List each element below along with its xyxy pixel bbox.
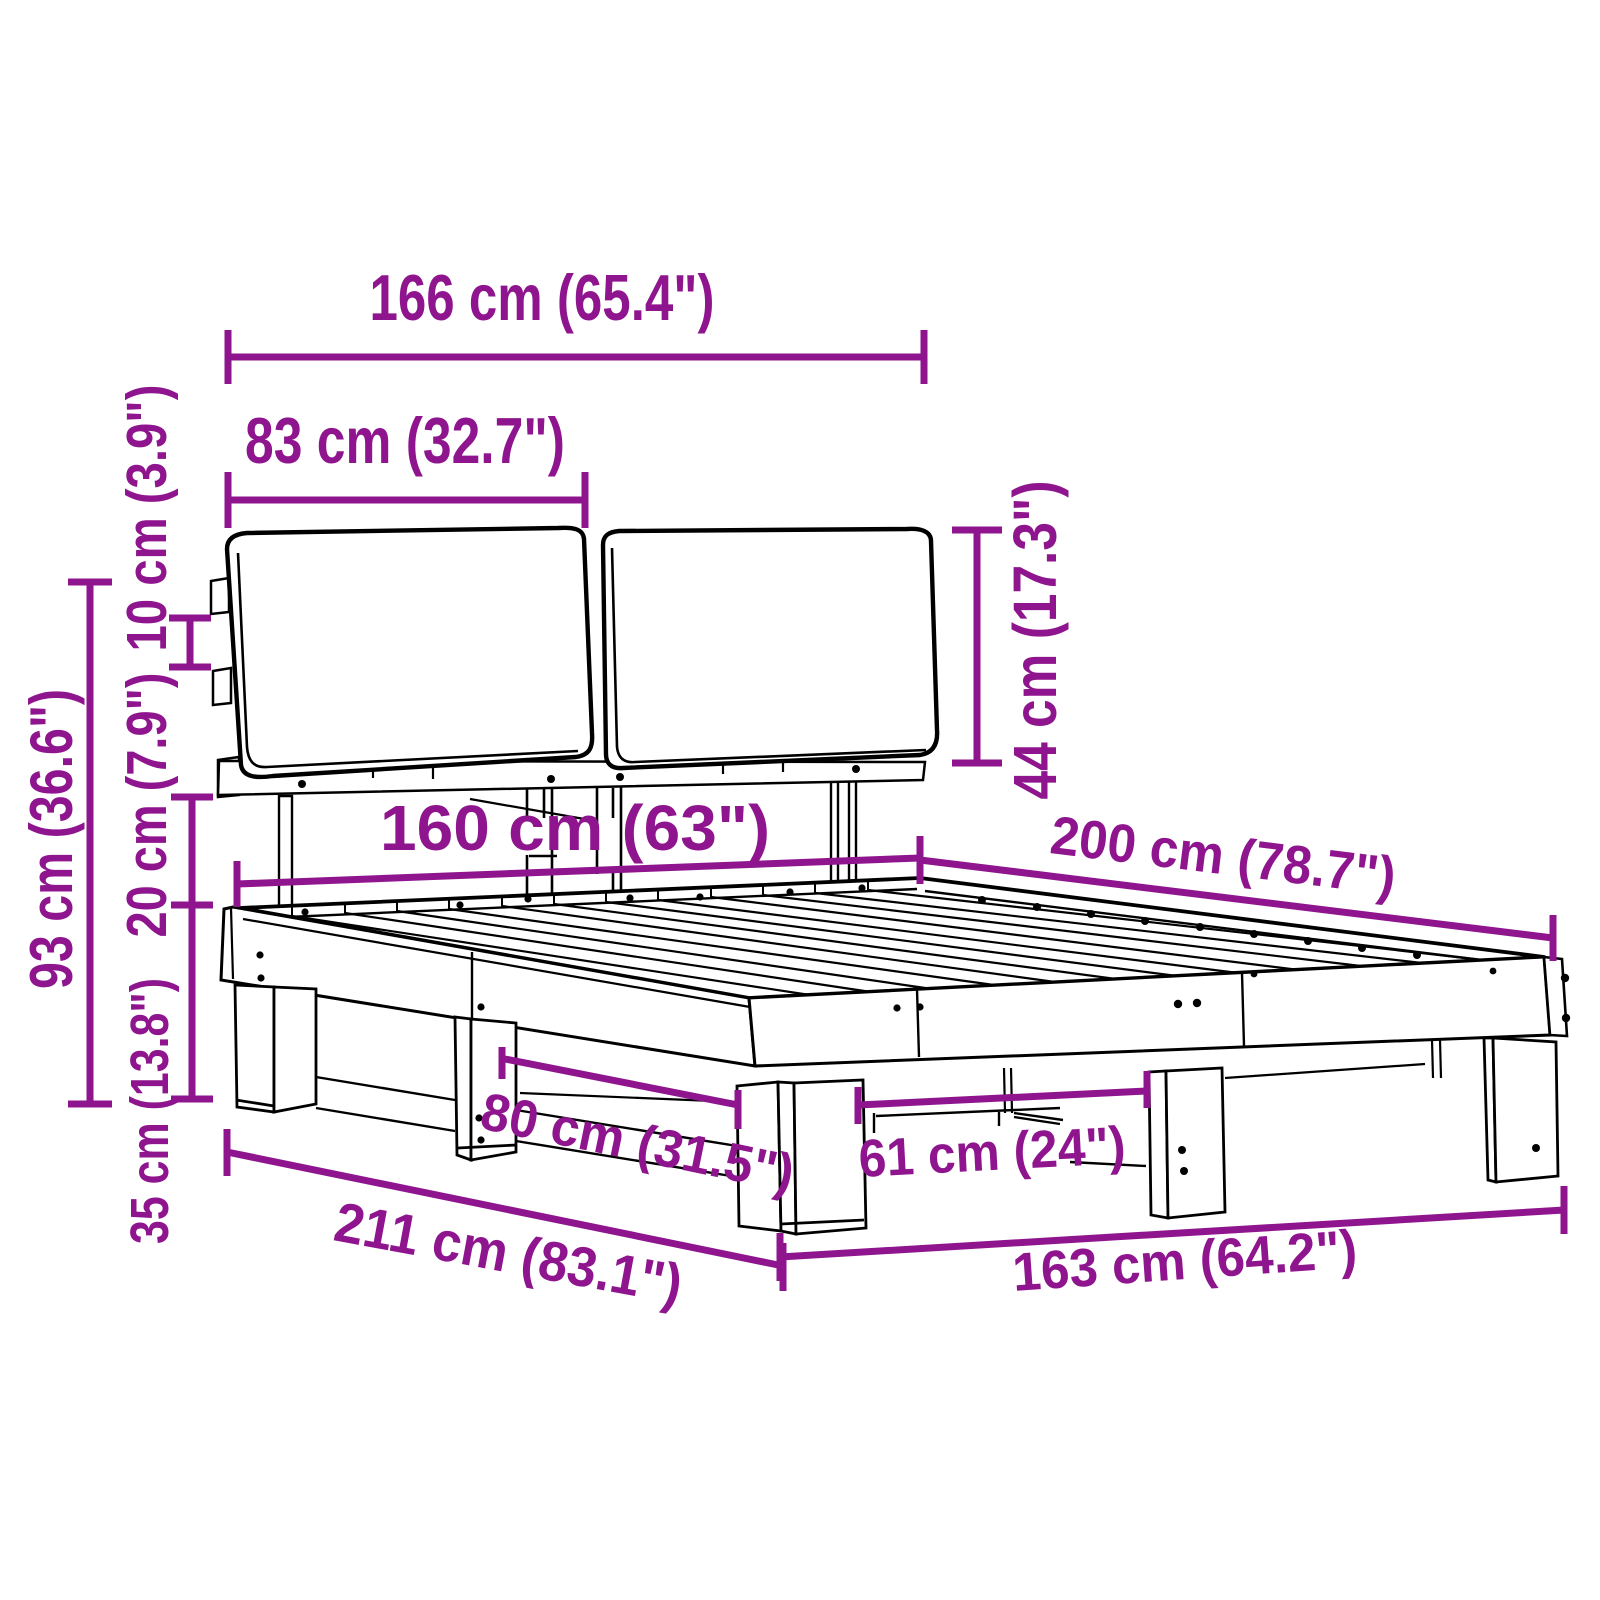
svg-text:44 cm (17.3"): 44 cm (17.3") xyxy=(1001,481,1069,800)
svg-text:160 cm (63"): 160 cm (63") xyxy=(380,792,770,864)
svg-text:83 cm (32.7"): 83 cm (32.7") xyxy=(245,404,565,477)
svg-text:93 cm (36.6"): 93 cm (36.6") xyxy=(18,689,85,989)
svg-text:20 cm (7.9"): 20 cm (7.9") xyxy=(115,673,179,938)
svg-text:35 cm (13.8"): 35 cm (13.8") xyxy=(120,978,180,1244)
svg-text:10 cm (3.9"): 10 cm (3.9") xyxy=(115,385,179,652)
svg-text:166 cm (65.4"): 166 cm (65.4") xyxy=(370,261,715,334)
